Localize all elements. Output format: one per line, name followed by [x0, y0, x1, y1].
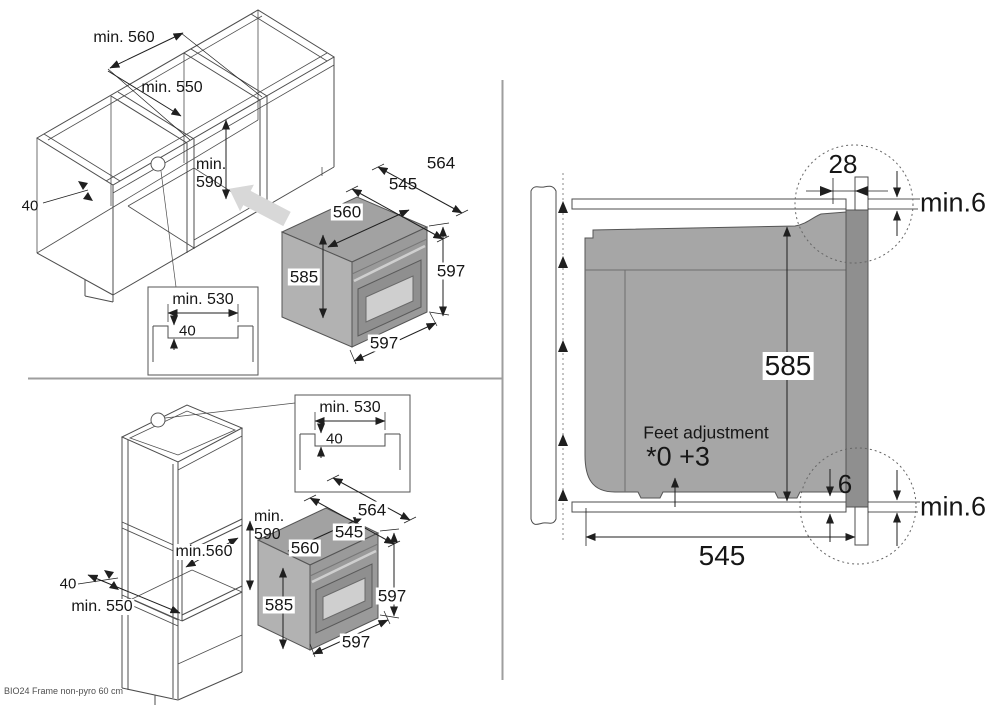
detail-callout-circle-2 — [151, 413, 165, 427]
detail-leader-line-2 — [165, 403, 295, 418]
dim-oven2-width-front: 597 — [340, 634, 372, 651]
diagram-line-art — [0, 0, 1000, 707]
dim-niche-height-line2: 590 — [196, 175, 223, 191]
dim-niche2-height-line2: 590 — [254, 527, 281, 543]
dim-inset-width: min. 530 — [172, 292, 233, 308]
dim-inset-depth: 40 — [179, 324, 196, 339]
detail-leader-line — [161, 171, 176, 287]
bottom-shelf — [572, 502, 846, 512]
dim-oven-depth-total: 564 — [427, 155, 455, 172]
dim-inset2-width: min. 530 — [319, 400, 380, 416]
dim-front-rail-2: 40 — [60, 577, 77, 592]
oven-front-frame — [846, 210, 868, 507]
feet-adjustment-values: *0 +3 — [646, 444, 710, 471]
dim-section-depth: 545 — [699, 542, 746, 570]
dim-niche2-height-line1: min. — [254, 509, 284, 525]
dim-section-height: 585 — [763, 352, 814, 380]
dim-oven2-width-body: 560 — [289, 540, 321, 557]
dim-oven2-depth-total: 564 — [356, 502, 388, 519]
dim-oven2-height-front: 597 — [376, 588, 408, 605]
dim-oven-width-body: 560 — [331, 204, 363, 221]
dim-oven-width-front: 597 — [368, 335, 400, 352]
frame-bottom-tab — [855, 507, 868, 545]
tall-cabinet-view — [78, 395, 416, 705]
dim-niche-depth: min. 550 — [141, 80, 202, 96]
detail-callout-circle — [151, 157, 165, 171]
dim-front-rail: 40 — [22, 199, 39, 214]
dim-oven2-height-body: 585 — [263, 597, 295, 614]
side-section-view — [531, 145, 920, 564]
dim-inset2-depth: 40 — [326, 432, 343, 447]
dim-niche2-width: min.560 — [174, 544, 235, 560]
dim-top-overlap: 28 — [829, 151, 858, 177]
wall-panel — [531, 186, 556, 524]
dim-bottom-front-gap: 6 — [838, 471, 852, 497]
dim-top-gap: min.6 — [920, 190, 986, 217]
feet-adjustment-label: Feet adjustment — [643, 424, 768, 442]
dim-oven-height-body: 585 — [288, 269, 320, 286]
dim-oven-height-front: 597 — [435, 263, 467, 280]
installation-diagram: min. 560 min. 550 min. 590 40 min. 530 4… — [0, 0, 1000, 707]
dim-niche-width: min. 560 — [93, 30, 154, 46]
top-shelf — [572, 199, 846, 209]
dim-oven-depth-body: 545 — [389, 176, 417, 193]
dim-bottom-gap: min.6 — [920, 494, 986, 521]
dim-niche-height-line1: min. — [196, 157, 226, 173]
airflow-arrows — [558, 201, 568, 501]
dim-oven2-depth-body: 545 — [333, 524, 365, 541]
model-note: BIO24 Frame non-pyro 60 cm — [4, 686, 123, 696]
dim-niche2-depth: min. 550 — [69, 599, 134, 615]
